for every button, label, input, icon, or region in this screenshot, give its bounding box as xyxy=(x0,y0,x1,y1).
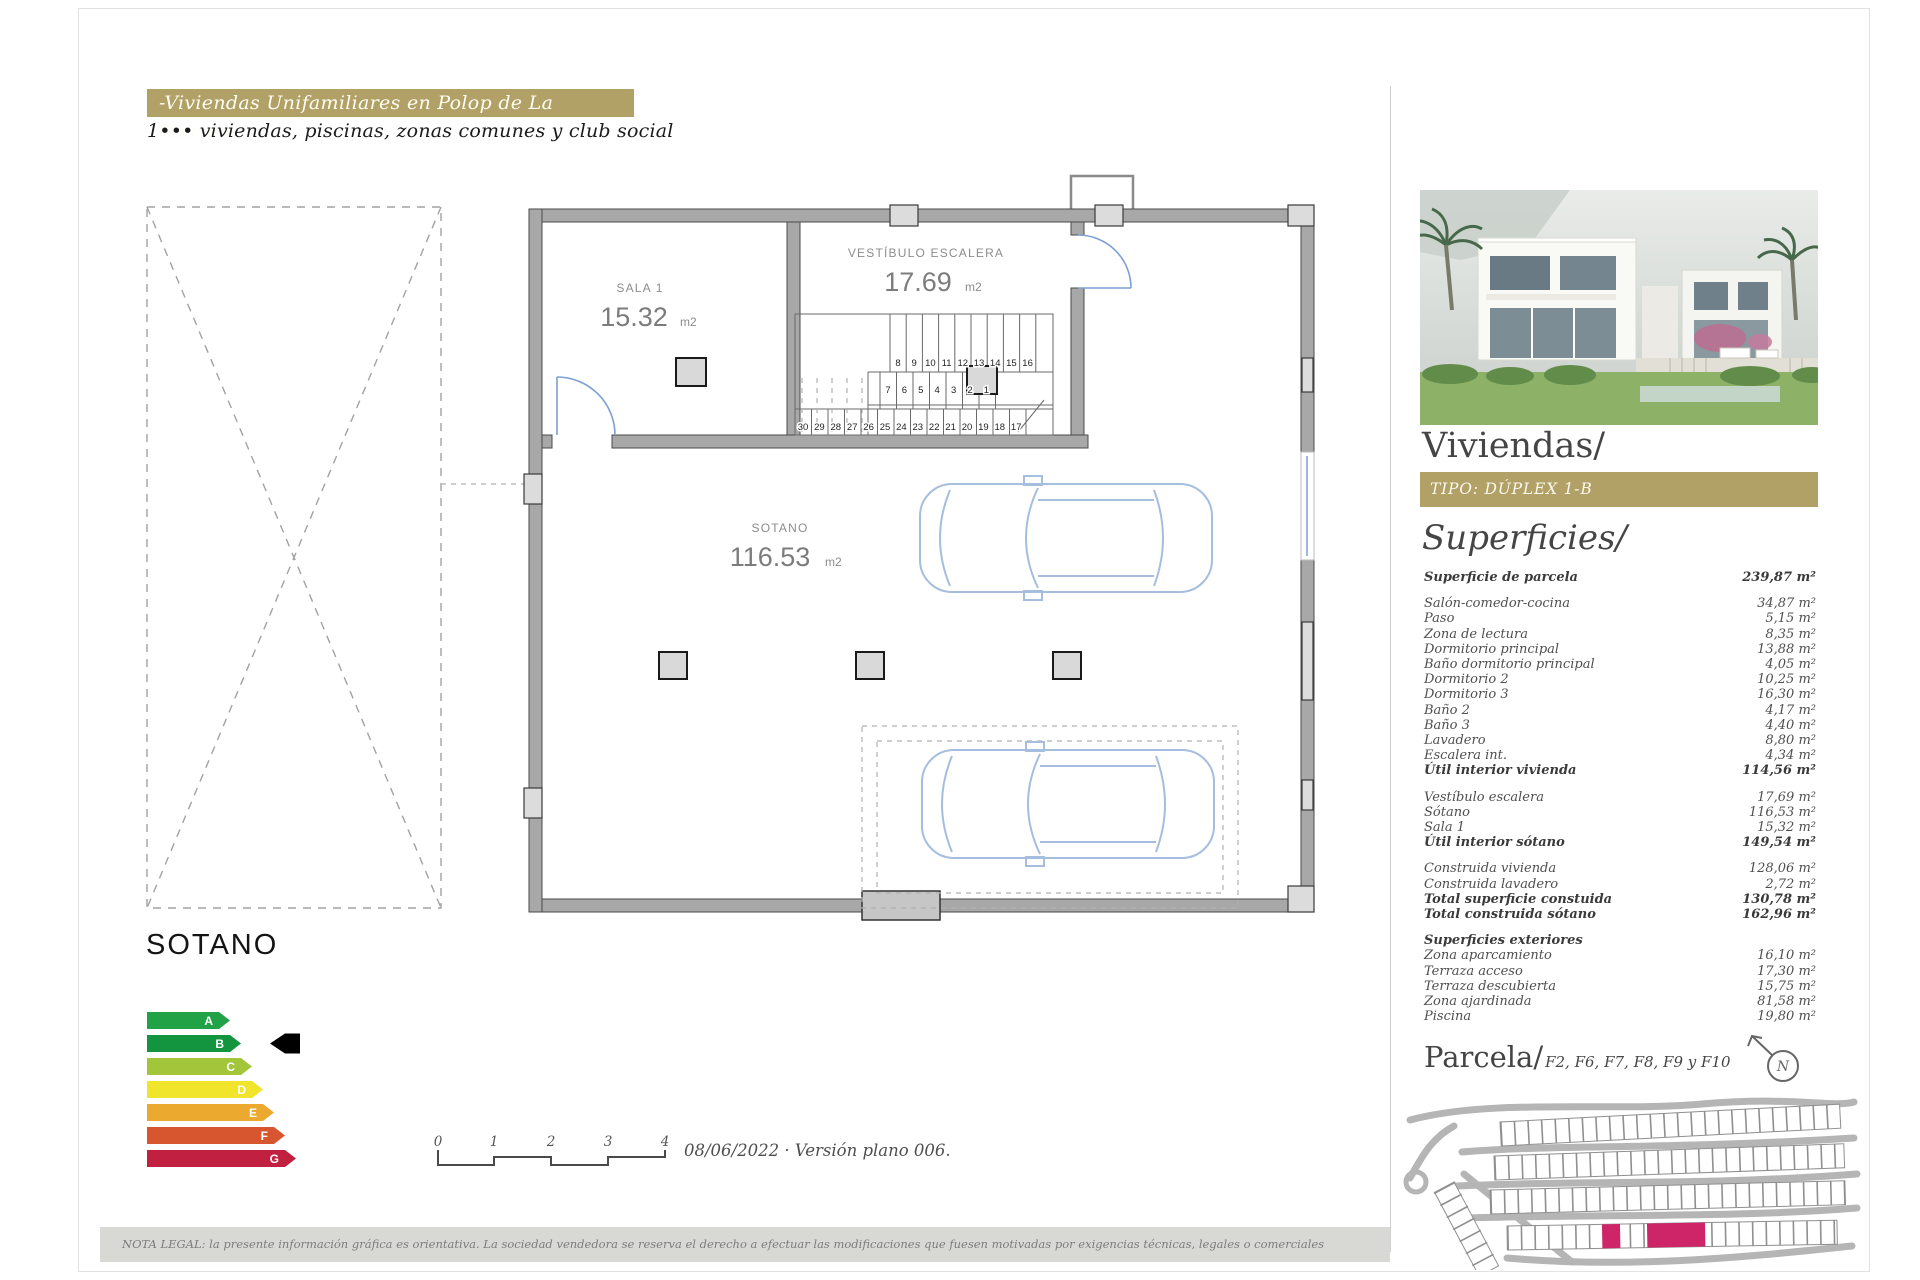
scale-tick: 4 xyxy=(660,1134,670,1150)
surface-value: 16,10 m² xyxy=(1757,948,1816,963)
surface-row: Útil interior sótano149,54 m² xyxy=(1424,835,1816,850)
surface-label: Dormitorio 2 xyxy=(1424,672,1509,687)
surface-value: 8,35 m² xyxy=(1765,627,1816,642)
highlighted-parcel-block xyxy=(1647,1223,1705,1248)
surface-row: Terraza acceso17,30 m² xyxy=(1424,964,1816,979)
surface-label: Total superficie constuida xyxy=(1424,892,1612,907)
stair-step-number: 20 xyxy=(962,422,973,433)
adjacent-parcel-dashed-area xyxy=(147,207,528,908)
surface-value: 149,54 m² xyxy=(1742,835,1816,850)
surface-row: Paso5,15 m² xyxy=(1424,611,1816,626)
house-type-label: TIPO: DÚPLEX 1-B xyxy=(1430,480,1593,498)
surface-row: Superficies exteriores xyxy=(1424,933,1816,948)
room-name-sotano: SOTANO xyxy=(752,521,809,535)
energy-grade-letter: G xyxy=(270,1152,279,1166)
car-outline-lower xyxy=(922,742,1214,866)
energy-grade-letter: D xyxy=(237,1083,246,1097)
house-type-banner: TIPO: DÚPLEX 1-B xyxy=(1420,472,1818,507)
energy-grade-bar-c xyxy=(147,1058,252,1075)
energy-grade-bar-b xyxy=(147,1035,241,1052)
stair-step-number: 22 xyxy=(929,422,940,433)
energy-selected-pointer xyxy=(270,1034,300,1054)
surface-value: 4,40 m² xyxy=(1765,718,1816,733)
surface-label: Baño dormitorio principal xyxy=(1424,657,1595,672)
surface-row: Terraza descubierta15,75 m² xyxy=(1424,979,1816,994)
scale-tick: 1 xyxy=(490,1134,499,1150)
surface-row: Baño 24,17 m² xyxy=(1424,703,1816,718)
site-plan-map xyxy=(1402,1086,1864,1270)
surface-row: Total construida sótano162,96 m² xyxy=(1424,907,1816,922)
surface-label: Construida vivienda xyxy=(1424,861,1556,876)
stair-step-number: 16 xyxy=(1022,358,1033,369)
surface-label: Dormitorio 3 xyxy=(1424,687,1509,702)
stair-step-number: 4 xyxy=(935,385,940,396)
surface-value: 4,34 m² xyxy=(1765,748,1816,763)
surface-row: Dormitorio 316,30 m² xyxy=(1424,687,1816,702)
graphic-scale-bar: 0 1 2 3 4 xyxy=(428,1134,678,1174)
stair-step-number: 30 xyxy=(798,422,809,433)
surface-row: Zona ajardinada81,58 m² xyxy=(1424,994,1816,1009)
energy-grade-letter: E xyxy=(249,1106,257,1120)
surface-label: Salón-comedor-cocina xyxy=(1424,596,1570,611)
parcela-heading: Parcela/F2, F6, F7, F8, F9 y F10 xyxy=(1424,1040,1731,1074)
surface-label: Terraza acceso xyxy=(1424,964,1523,979)
surface-label: Superficie de parcela xyxy=(1424,570,1578,585)
room-name-vestibulo: VESTÍBULO ESCALERA xyxy=(848,245,1004,260)
parcela-title: Parcela/ xyxy=(1424,1040,1543,1074)
surface-row: Vestíbulo escalera17,69 m² xyxy=(1424,790,1816,805)
surface-value: 15,32 m² xyxy=(1757,820,1816,835)
surface-label: Escalera int. xyxy=(1424,748,1507,763)
floor-name-label: SOTANO xyxy=(146,929,278,962)
surface-label: Zona aparcamiento xyxy=(1424,948,1552,963)
floor-plan-drawing: 8910111213141516 7654321 302928272625242… xyxy=(120,160,1350,930)
stair-step-number: 3 xyxy=(951,385,956,396)
sidebar-divider xyxy=(1390,86,1391,1252)
surface-label: Zona ajardinada xyxy=(1424,994,1532,1009)
sidebar-title: Viviendas/ xyxy=(1422,426,1605,466)
surface-value: 162,96 m² xyxy=(1742,907,1816,922)
surface-row: Dormitorio 210,25 m² xyxy=(1424,672,1816,687)
stair-step-number: 23 xyxy=(913,422,924,433)
energy-grade-letter: C xyxy=(226,1060,235,1074)
surface-value: 4,05 m² xyxy=(1765,657,1816,672)
surface-value: 34,87 m² xyxy=(1757,596,1816,611)
surface-label: Zona de lectura xyxy=(1424,627,1528,642)
surface-value: 81,58 m² xyxy=(1757,994,1816,1009)
parcela-subtitle: F2, F6, F7, F8, F9 y F10 xyxy=(1545,1053,1730,1071)
plan-version-caption: 08/06/2022 · Versión plano 006. xyxy=(684,1141,951,1160)
stair-numbers-bottom: 3029282726252423222120191817 xyxy=(798,422,1022,433)
surface-value: 128,06 m² xyxy=(1749,861,1816,876)
surfaces-table: Superficie de parcela239,87 m²Salón-come… xyxy=(1424,570,1816,1024)
surface-value: 5,15 m² xyxy=(1765,611,1816,626)
stair-step-number: 12 xyxy=(958,358,969,369)
stair-step-number: 21 xyxy=(945,422,956,433)
stair-step-number: 1 xyxy=(984,385,989,396)
room-unit-sotano: m2 xyxy=(825,555,842,569)
surface-value: 17,69 m² xyxy=(1757,790,1816,805)
surface-value: 8,80 m² xyxy=(1765,733,1816,748)
surface-value: 130,78 m² xyxy=(1742,892,1816,907)
stair-step-number: 8 xyxy=(895,358,900,369)
surface-value: 15,75 m² xyxy=(1757,979,1816,994)
stair-step-number: 27 xyxy=(847,422,858,433)
surface-label: Sala 1 xyxy=(1424,820,1465,835)
surface-row: Zona de lectura8,35 m² xyxy=(1424,627,1816,642)
stair-step-number: 25 xyxy=(880,422,891,433)
surface-label: Baño 3 xyxy=(1424,718,1470,733)
surface-row: Construida vivienda128,06 m² xyxy=(1424,861,1816,876)
surface-label: Baño 2 xyxy=(1424,703,1470,718)
north-compass-icon: N xyxy=(1738,1028,1808,1090)
scale-tick: 0 xyxy=(434,1134,443,1150)
room-name-sala: SALA 1 xyxy=(616,281,663,295)
surface-label: Construida lavadero xyxy=(1424,877,1558,892)
highlighted-parcel-single xyxy=(1602,1224,1620,1248)
surface-label: Total construida sótano xyxy=(1424,907,1596,922)
surface-value: 114,56 m² xyxy=(1742,763,1816,778)
energy-rating-label: ABCDEFG xyxy=(147,1012,357,1172)
surface-label: Lavadero xyxy=(1424,733,1486,748)
surface-label: Paso xyxy=(1424,611,1454,626)
room-area-vestibulo: 17.69 xyxy=(884,267,952,297)
stair-step-number: 13 xyxy=(974,358,985,369)
surface-value: 4,17 m² xyxy=(1765,703,1816,718)
surface-label: Dormitorio principal xyxy=(1424,642,1559,657)
surface-row: Sala 115,32 m² xyxy=(1424,820,1816,835)
ramp-entry-block xyxy=(862,891,940,920)
surface-row: Sótano116,53 m² xyxy=(1424,805,1816,820)
surface-row: Piscina19,80 m² xyxy=(1424,1009,1816,1024)
surface-label: Piscina xyxy=(1424,1009,1471,1024)
staircase: 8910111213141516 7654321 302928272625242… xyxy=(795,314,1053,435)
stair-step-number: 19 xyxy=(978,422,989,433)
legal-note-band: NOTA LEGAL: la presente información gráf… xyxy=(100,1227,1390,1262)
scale-tick: 3 xyxy=(604,1134,613,1150)
stair-step-number: 28 xyxy=(831,422,842,433)
surface-label: Superficies exteriores xyxy=(1424,933,1583,948)
stair-step-number: 18 xyxy=(995,422,1006,433)
surface-row: Baño dormitorio principal4,05 m² xyxy=(1424,657,1816,672)
surface-label: Útil interior sótano xyxy=(1424,835,1565,850)
surface-row: Zona aparcamiento16,10 m² xyxy=(1424,948,1816,963)
surface-value: 13,88 m² xyxy=(1757,642,1816,657)
stair-step-number: 15 xyxy=(1006,358,1017,369)
surface-value: 239,87 m² xyxy=(1742,570,1816,585)
surface-row: Útil interior vivienda114,56 m² xyxy=(1424,763,1816,778)
surface-label: Terraza descubierta xyxy=(1424,979,1556,994)
stair-step-number: 17 xyxy=(1011,422,1022,433)
stair-step-number: 9 xyxy=(912,358,917,369)
surface-value: 19,80 m² xyxy=(1757,1009,1816,1024)
project-title-banner: -Viviendas Unifamiliares en Polop de La … xyxy=(147,89,634,117)
surface-label: Útil interior vivienda xyxy=(1424,763,1576,778)
villa-render-image xyxy=(1420,190,1818,425)
parking-bay-outline xyxy=(862,726,1238,908)
surface-row: Baño 34,40 m² xyxy=(1424,718,1816,733)
structural-columns xyxy=(659,358,1081,679)
stair-step-number: 24 xyxy=(896,422,907,433)
surfaces-title: Superficies/ xyxy=(1422,518,1627,558)
stair-step-number: 7 xyxy=(885,385,890,396)
energy-grade-letter: A xyxy=(204,1014,213,1028)
surface-row: Salón-comedor-cocina34,87 m² xyxy=(1424,596,1816,611)
energy-grade-bar-a xyxy=(147,1012,230,1029)
stair-step-number: 10 xyxy=(925,358,936,369)
room-unit-vestibulo: m2 xyxy=(965,280,982,294)
project-subtitle: 1••• viviendas, piscinas, zonas comunes … xyxy=(147,120,674,142)
stair-step-number: 2 xyxy=(967,385,972,396)
stair-numbers-top: 8910111213141516 xyxy=(895,358,1033,369)
scale-tick: 2 xyxy=(546,1134,556,1150)
stair-step-number: 29 xyxy=(814,422,825,433)
surface-row: Superficie de parcela239,87 m² xyxy=(1424,570,1816,585)
surface-row: Lavadero8,80 m² xyxy=(1424,733,1816,748)
surface-value: 2,72 m² xyxy=(1765,877,1816,892)
legal-note-text: NOTA LEGAL: la presente información gráf… xyxy=(100,1227,1390,1262)
surface-row: Total superficie constuida130,78 m² xyxy=(1424,892,1816,907)
room-area-sala: 15.32 xyxy=(600,302,668,332)
room-unit-sala: m2 xyxy=(680,315,697,329)
room-area-sotano: 116.53 xyxy=(730,542,811,572)
stair-step-number: 11 xyxy=(942,358,952,369)
compass-north-letter: N xyxy=(1776,1059,1790,1075)
surface-row: Escalera int.4,34 m² xyxy=(1424,748,1816,763)
stair-step-number: 14 xyxy=(990,358,1001,369)
surface-row: Dormitorio principal13,88 m² xyxy=(1424,642,1816,657)
car-outline-upper xyxy=(920,476,1212,600)
surface-row: Construida lavadero2,72 m² xyxy=(1424,877,1816,892)
surface-value: 17,30 m² xyxy=(1757,964,1816,979)
energy-grade-letter: B xyxy=(215,1037,224,1051)
stair-step-number: 6 xyxy=(902,385,907,396)
energy-grade-letter: F xyxy=(261,1129,268,1143)
surface-label: Sótano xyxy=(1424,805,1470,820)
surface-value: 16,30 m² xyxy=(1757,687,1816,702)
surface-value: 10,25 m² xyxy=(1757,672,1816,687)
basement-window xyxy=(1301,452,1314,560)
stair-step-number: 5 xyxy=(918,385,923,396)
stair-step-number: 26 xyxy=(863,422,874,433)
surface-value: 116,53 m² xyxy=(1749,805,1816,820)
surface-label: Vestíbulo escalera xyxy=(1424,790,1544,805)
